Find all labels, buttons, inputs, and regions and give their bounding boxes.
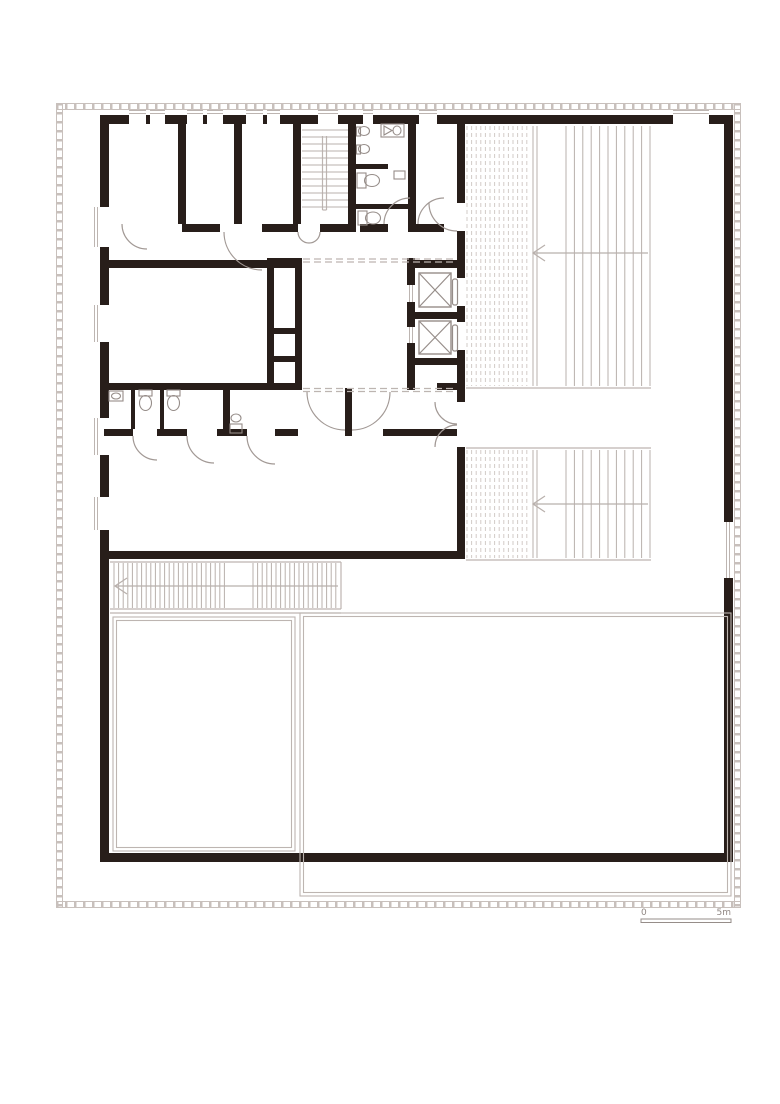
scale-bar-zero-label: 0 bbox=[641, 908, 647, 918]
wall-segment bbox=[407, 358, 465, 365]
scale-bar bbox=[641, 919, 731, 923]
wall-segment bbox=[100, 455, 109, 497]
wall-segment bbox=[457, 124, 465, 203]
wall-segment bbox=[182, 224, 220, 232]
wall-segment bbox=[457, 231, 465, 278]
wall-segment bbox=[165, 115, 187, 124]
wall-segment bbox=[100, 853, 733, 862]
wall-segment bbox=[295, 258, 302, 390]
wall-segment bbox=[338, 115, 363, 124]
sanitary-fixture bbox=[393, 126, 401, 135]
wall-segment bbox=[373, 115, 419, 124]
wall-segment bbox=[234, 124, 242, 224]
wall-segment bbox=[437, 115, 673, 124]
wall-segment bbox=[203, 115, 207, 124]
wall-segment bbox=[223, 115, 246, 124]
wall-segment bbox=[160, 390, 164, 429]
wall-segment bbox=[275, 429, 298, 436]
door-swing-arc bbox=[435, 402, 457, 424]
sanitary-fixture bbox=[231, 414, 241, 422]
wall-segment bbox=[293, 124, 301, 224]
floor-plan-drawing: 0 5m bbox=[0, 0, 780, 1104]
wall-segment bbox=[262, 224, 298, 232]
wall-segment bbox=[100, 115, 129, 124]
sanitary-fixture bbox=[365, 175, 380, 187]
wall-segment bbox=[407, 343, 415, 390]
wall-segment bbox=[157, 429, 187, 436]
wall-segment bbox=[263, 115, 267, 124]
wall-segment bbox=[724, 578, 733, 862]
wall-segment bbox=[356, 164, 388, 169]
sanitary-fixture bbox=[140, 396, 152, 411]
door-swing-arc bbox=[309, 232, 320, 243]
door-swing-arc bbox=[298, 232, 309, 243]
scale-bar-5m-label: 5m bbox=[717, 908, 732, 918]
door-swing-arc bbox=[122, 224, 147, 249]
sanitary-fixture bbox=[394, 171, 405, 179]
wall-segment bbox=[100, 551, 465, 559]
door-swing-arc bbox=[307, 392, 345, 430]
wall-segment bbox=[408, 124, 416, 232]
wall-segment bbox=[104, 429, 133, 436]
wall-segment bbox=[356, 204, 408, 209]
sanitary-fixture bbox=[168, 396, 180, 411]
sanitary-fixture bbox=[366, 212, 381, 224]
wall-segment bbox=[407, 260, 465, 268]
wall-segment bbox=[146, 115, 150, 124]
wall-segment bbox=[274, 328, 295, 334]
floor-plan-page: 0 5m bbox=[0, 0, 780, 1104]
elevator-door-icon bbox=[453, 325, 458, 351]
sanitary-fixture bbox=[384, 126, 392, 135]
wall-segment bbox=[104, 383, 295, 390]
lower-level-outline bbox=[117, 621, 292, 848]
wall-segment bbox=[223, 390, 230, 429]
wall-segment bbox=[100, 247, 109, 305]
wall-segment bbox=[267, 258, 274, 390]
door-swing-arc bbox=[247, 436, 275, 464]
lower-level-outline bbox=[113, 617, 295, 851]
wall-segment bbox=[407, 302, 415, 327]
wall-segment bbox=[724, 115, 733, 522]
sanitary-fixture bbox=[112, 393, 121, 399]
wall-segment bbox=[457, 447, 465, 553]
wall-segment bbox=[348, 124, 356, 232]
wall-segment bbox=[131, 390, 135, 429]
wall-segment bbox=[407, 312, 465, 319]
wall-segment bbox=[274, 384, 295, 390]
door-swing-arc bbox=[187, 436, 214, 463]
elevator-door-icon bbox=[453, 279, 458, 305]
wall-segment bbox=[100, 115, 109, 207]
door-swing-arc bbox=[352, 392, 390, 430]
wall-segment bbox=[709, 115, 733, 124]
wall-segment bbox=[320, 224, 352, 232]
wall-segment bbox=[280, 115, 318, 124]
wall-segment bbox=[345, 388, 352, 436]
wall-segment bbox=[100, 530, 109, 862]
wall-segment bbox=[178, 124, 186, 224]
wall-segment bbox=[274, 356, 295, 362]
door-swing-arc bbox=[384, 198, 410, 224]
lower-level-outline bbox=[304, 617, 728, 893]
door-swing-arc bbox=[133, 436, 157, 460]
wall-segment bbox=[457, 350, 465, 402]
wall-segment bbox=[100, 342, 109, 418]
wall-segment bbox=[383, 429, 457, 436]
door-swing-arc bbox=[418, 198, 444, 224]
wall-segment bbox=[109, 260, 302, 268]
